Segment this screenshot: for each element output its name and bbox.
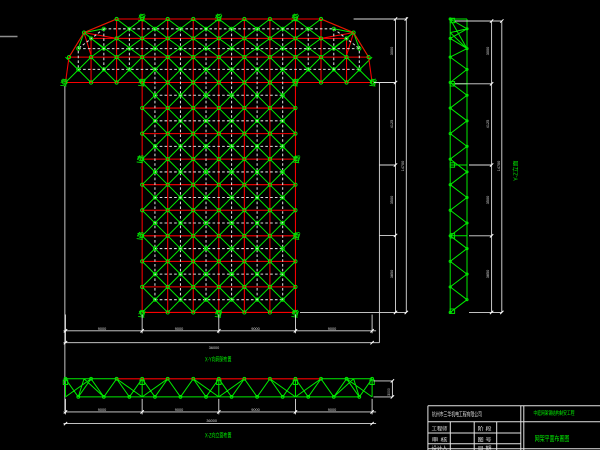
svg-text:9000: 9000 xyxy=(175,408,183,412)
svg-text:图 号: 图 号 xyxy=(478,437,492,444)
svg-text:3500: 3500 xyxy=(486,196,490,204)
svg-text:工程师: 工程师 xyxy=(432,424,448,432)
svg-text:3000: 3000 xyxy=(390,47,394,55)
svg-text:网架平面布置图: 网架平面布置图 xyxy=(535,434,570,443)
svg-text:审 核: 审 核 xyxy=(432,436,448,444)
svg-text:36000: 36000 xyxy=(209,346,220,350)
svg-text:日 期: 日 期 xyxy=(478,445,492,450)
svg-text:9000: 9000 xyxy=(98,327,106,331)
svg-text:14700: 14700 xyxy=(401,161,405,172)
svg-text:3500: 3500 xyxy=(390,196,394,204)
svg-text:3000: 3000 xyxy=(486,47,490,55)
svg-text:14700: 14700 xyxy=(497,161,501,172)
svg-text:3000: 3000 xyxy=(387,388,391,396)
svg-text:9000: 9000 xyxy=(251,408,259,412)
svg-text:36000: 36000 xyxy=(206,419,217,423)
svg-text:9000: 9000 xyxy=(251,327,259,331)
svg-text:X-Y向网架布置: X-Y向网架布置 xyxy=(205,356,232,364)
svg-text:杭州市三华机电工程有限公司: 杭州市三华机电工程有限公司 xyxy=(432,411,482,419)
svg-text:9000: 9000 xyxy=(175,327,183,331)
svg-text:X-Z向立面布置: X-Z向立面布置 xyxy=(205,431,232,439)
svg-text:9000: 9000 xyxy=(98,408,106,412)
svg-text:3850: 3850 xyxy=(486,270,490,278)
svg-text:9000: 9000 xyxy=(328,408,336,412)
svg-text:中庭网架钢结构制安工程: 中庭网架钢结构制安工程 xyxy=(534,409,575,417)
svg-text:Y-Z立面: Y-Z立面 xyxy=(512,160,520,181)
svg-text:阶 段: 阶 段 xyxy=(478,424,492,432)
svg-text:4125: 4125 xyxy=(486,120,490,128)
svg-text:3850: 3850 xyxy=(390,270,394,278)
svg-text:4125: 4125 xyxy=(390,120,394,128)
svg-text:9000: 9000 xyxy=(328,327,336,331)
